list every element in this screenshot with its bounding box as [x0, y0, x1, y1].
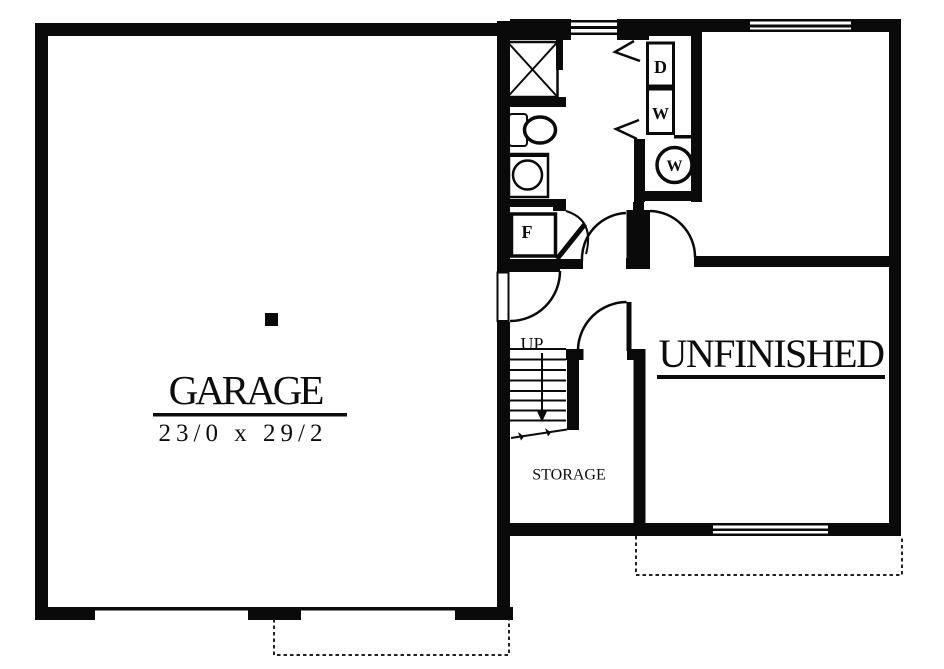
svg-text:W: W [652, 104, 669, 123]
svg-text:GARAGE: GARAGE [169, 367, 323, 413]
svg-text:23/0 x 29/2: 23/0 x 29/2 [159, 420, 328, 447]
svg-text:W: W [667, 158, 683, 175]
svg-text:F: F [522, 222, 533, 242]
svg-text:UP: UP [520, 334, 543, 354]
svg-text:STORAGE: STORAGE [532, 467, 606, 484]
svg-text:UNFINISHED: UNFINISHED [659, 331, 885, 376]
svg-text:D: D [654, 57, 667, 77]
